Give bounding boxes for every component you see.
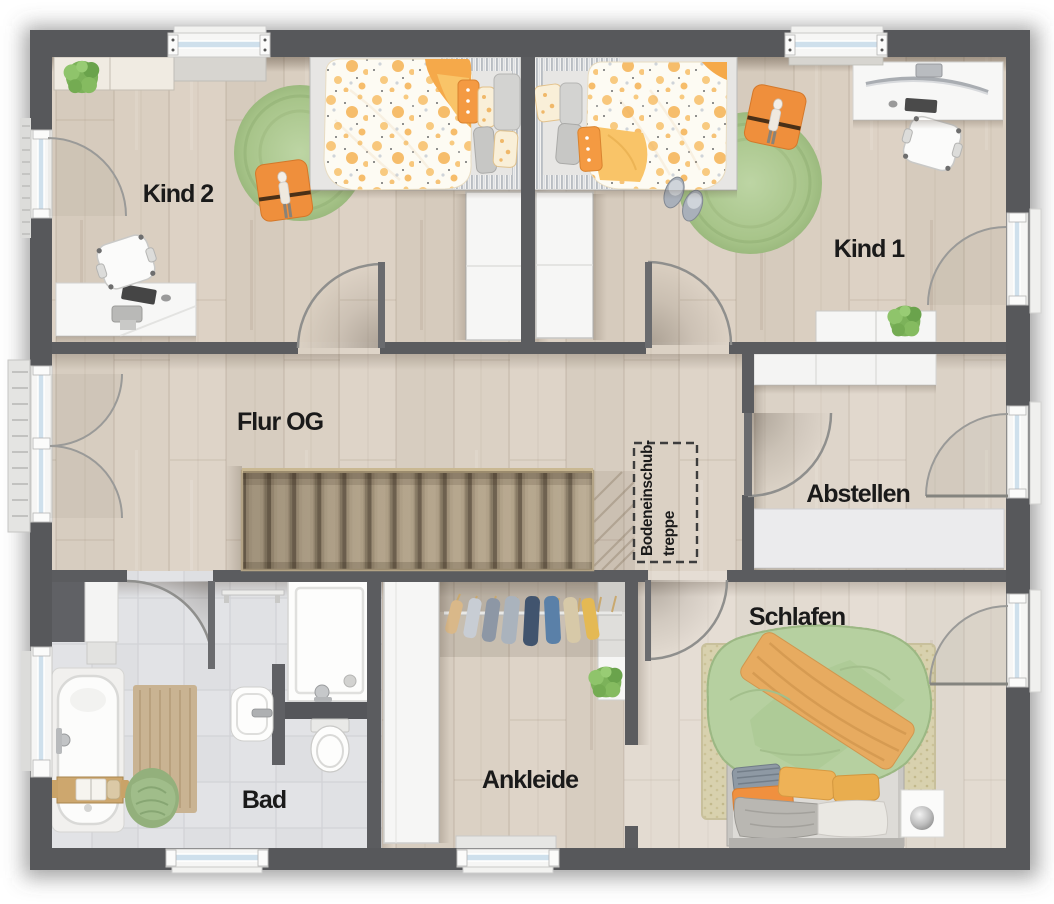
svg-text:Bad: Bad [242, 786, 286, 814]
svg-text:Schlafen: Schlafen [749, 603, 845, 631]
svg-text:Bodeneinschub-: Bodeneinschub- [639, 440, 656, 556]
svg-text:Ankleide: Ankleide [482, 766, 579, 794]
svg-text:Flur OG: Flur OG [237, 408, 323, 436]
svg-text:Abstellen: Abstellen [806, 480, 910, 508]
svg-text:Kind 2: Kind 2 [143, 180, 213, 208]
svg-text:treppe: treppe [661, 510, 678, 556]
svg-text:Kind 1: Kind 1 [834, 235, 905, 263]
